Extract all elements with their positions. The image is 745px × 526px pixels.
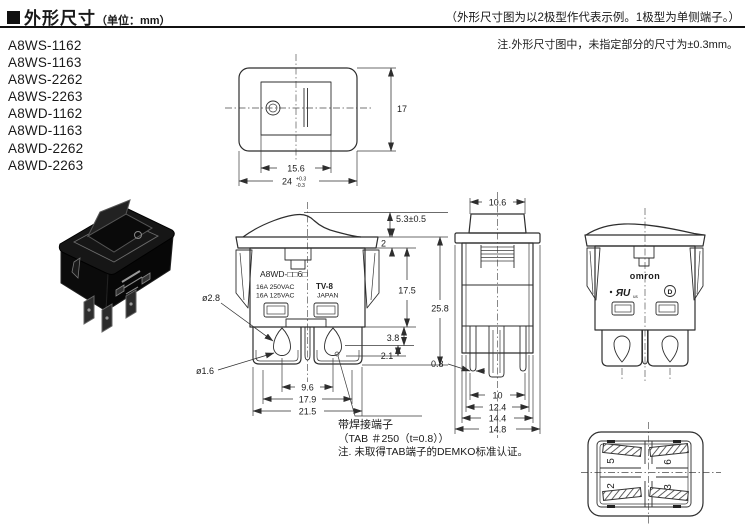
tab-note-certification: 注. 未取得TAB端子的DEMKO标准认证。 [338,446,528,460]
dim-w1: 10 [492,391,502,401]
rear-view-drawing: omron ЯU us D [570,208,722,388]
dim-w2: 12.4 [489,403,507,413]
dim-body-height: 17.5 [398,286,416,296]
marking-origin: JAPAN [317,293,338,300]
top-view-geometry [225,54,373,162]
dim-bezel-tol-plus: +0.3 [296,177,306,183]
dim-small-dia: ø1.6 [196,366,214,376]
terminal-number: 3 [663,484,674,490]
ul-mark-dot [610,291,612,293]
tab-note-spec: （TAB ＃250（t=0.8）） [338,433,528,447]
tolerance-note: 注.外形尺寸图中，未指定部分的尺寸为±0.3mm。 [497,36,738,52]
dim-flange-thickness: 2 [381,239,386,249]
bottom-view-drawing: 5 6 2 3 [585,420,737,526]
front-view-markings: A8WD-□□6□ 16A 250VAC 16A 125VAC TV-8 JAP… [256,269,338,300]
side-view-drawing: 10.6 0.8 10 12.4 14.4 14.8 [425,190,575,445]
dim-bezel-tol-minus: -0.3 [296,183,305,189]
marking-rating-1: 16A 250VAC [256,284,295,291]
model-item: A8WD-2262 [8,140,83,157]
terminal-bar [650,444,689,457]
model-item: A8WD-1163 [8,122,83,139]
dim-rocker-width: 15.6 [287,164,305,174]
header-rule [0,26,745,28]
ul-mark: ЯU [615,288,631,299]
dim-height-17: 17 [397,104,407,114]
dim-hole-offset-1: 3.8 [387,333,400,343]
marking-tv-rating: TV-8 [316,282,333,291]
dim-hole-dia: ø2.8 [202,293,220,303]
model-item: A8WS-1163 [8,54,83,71]
omron-logo: omron [630,271,661,281]
dim-width-outer: 21.5 [299,407,317,417]
terminal-number: 6 [663,459,674,465]
representation-note: （外形尺寸图为以2极型作代表示例。1极型为单侧端子。） [445,9,740,25]
model-item: A8WD-2263 [8,157,83,174]
dim-rocker-width: 10.6 [489,198,507,208]
rear-view-geometry [585,208,705,383]
dim-terminal-pitch: 9.6 [301,383,314,393]
marking-model: A8WD-□□6□ [260,269,308,279]
rear-view-markings: omron ЯU us D [610,271,676,299]
switch-photo-illustration [59,200,174,332]
tab-terminal-note: 带焊接端子 （TAB ＃250（t=0.8）） 注. 未取得TAB端子的DEMK… [338,419,528,460]
section-marker-icon [7,11,20,24]
bottom-view-geometry [581,422,721,524]
dim-bezel-width: 24 [282,177,292,187]
model-item: A8WS-1162 [8,37,83,54]
demko-mark: D [668,289,673,296]
model-item: A8WS-2262 [8,71,83,88]
datasheet-page: 外形尺寸（单位：mm） （外形尺寸图为以2极型作代表示例。1极型为单侧端子。） … [0,0,745,526]
model-item: A8WS-2263 [8,88,83,105]
top-view-drawing: 17 15.6 24 +0.3 -0.3 [225,50,425,198]
side-view-geometry [455,192,540,438]
marking-rating-2: 16A 125VAC [256,293,295,300]
dim-tab-thickness: 0.8 [431,359,444,369]
tab-note-label: 带焊接端子 [338,419,528,433]
dim-width-mid: 17.9 [299,395,317,405]
model-list: A8WS-1162 A8WS-1163 A8WS-2262 A8WS-2263 … [8,37,83,174]
model-item: A8WD-1162 [8,105,83,122]
terminal-number: 2 [606,483,617,489]
product-photo [46,178,181,318]
ul-mark-suffix: us [633,294,639,299]
dim-actuator-height: 5.3±0.5 [396,214,426,224]
top-view-dimensions: 17 15.6 24 +0.3 -0.3 [239,68,407,189]
terminal-bar [603,444,642,457]
front-view-dimensions: 5.3±0.5 2 17.5 25.8 3.8 2.1 9.6 [196,213,449,417]
terminal-number: 5 [606,458,617,464]
dim-hole-offset-2: 2.1 [381,351,394,361]
bottom-view-terminal-numbers: 5 6 2 3 [606,458,674,490]
